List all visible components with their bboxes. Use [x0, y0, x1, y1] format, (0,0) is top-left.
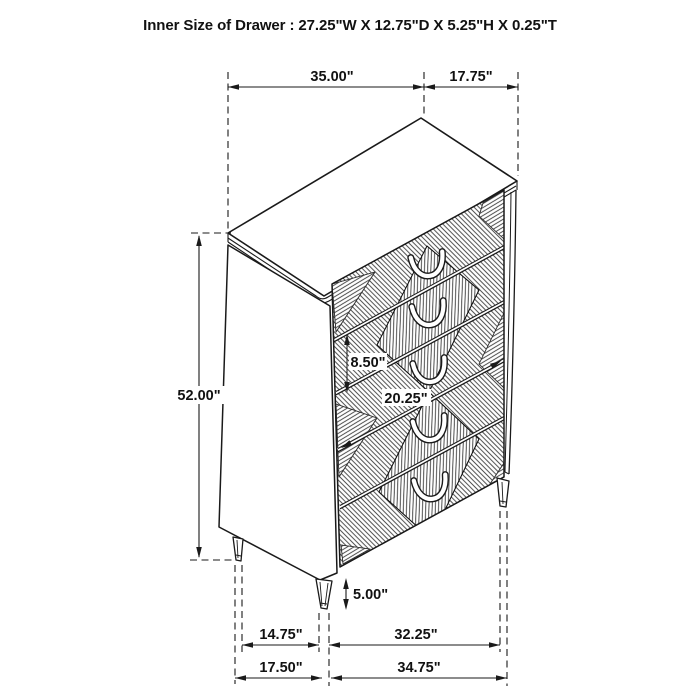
- dim-side-leg-outer-label: 17.50": [259, 660, 302, 676]
- dim-overall-height-label: 52.00": [177, 388, 220, 404]
- dim-bottom-row-inner: 14.75" 32.25": [242, 627, 500, 648]
- diagram-title: Inner Size of Drawer : 27.25"W X 12.75"D…: [143, 17, 557, 34]
- dim-front-leg-inner-label: 32.25": [394, 627, 437, 643]
- product-dimension-diagram: 35.00" 17.75" 52.00" 8.50" 20.25": [0, 0, 700, 700]
- diagram-canvas: 35.00" 17.75" 52.00" 8.50" 20.25": [0, 0, 700, 700]
- dim-leg-height: 5.00": [343, 578, 388, 610]
- chest-side-panel: [219, 245, 337, 580]
- dim-bottom-row-outer: 17.50" 34.75": [235, 660, 507, 681]
- dim-top-width-label: 35.00": [310, 69, 353, 85]
- dim-side-leg-inner-label: 14.75": [259, 627, 302, 643]
- right-leg: [497, 478, 509, 507]
- rear-left-leg: [233, 537, 243, 561]
- dim-leg-height-label: 5.00": [353, 587, 388, 603]
- dim-drawer-front-height-label: 8.50": [350, 355, 385, 371]
- dim-top-depth-label: 17.75": [449, 69, 492, 85]
- chest-right-edge: [505, 190, 516, 474]
- front-leg: [316, 579, 332, 609]
- dim-front-leg-outer-label: 34.75": [397, 660, 440, 676]
- dim-drawer-row-width-label: 20.25": [384, 391, 427, 407]
